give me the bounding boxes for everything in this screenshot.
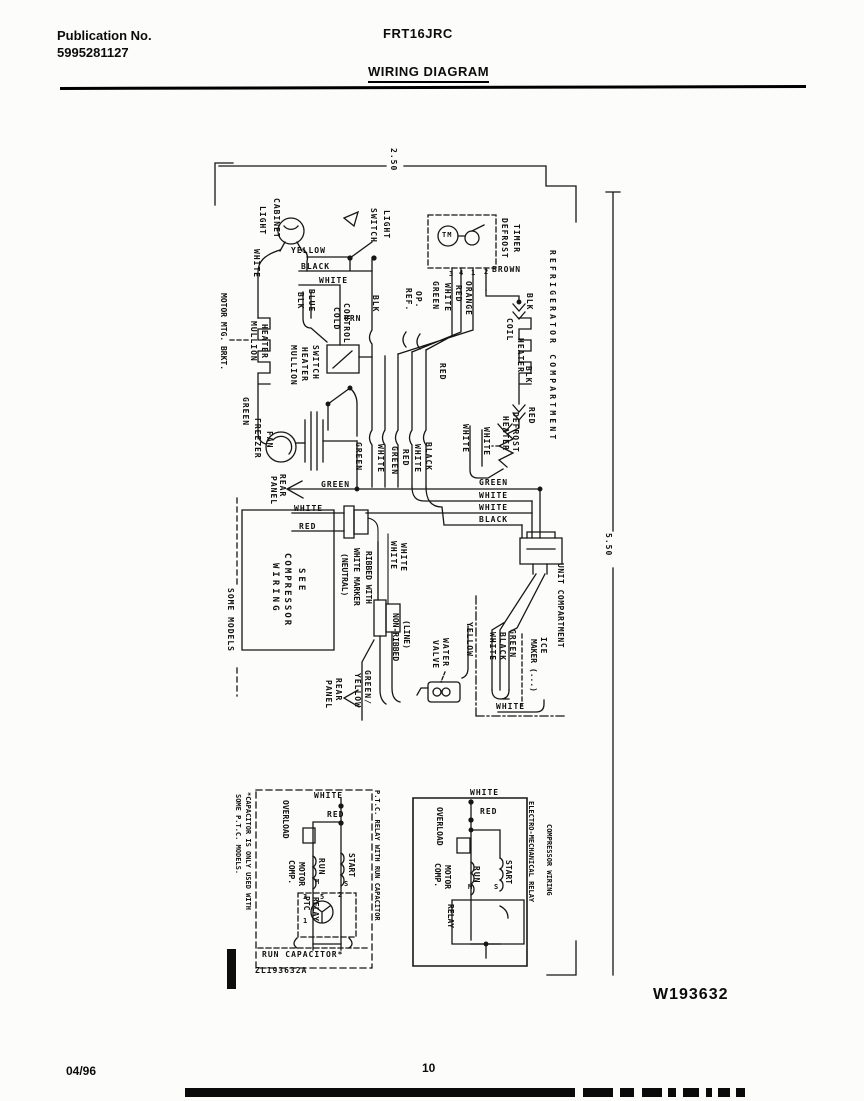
wire-label: PANEL bbox=[269, 476, 277, 505]
wire-label: WHITE bbox=[479, 492, 508, 500]
wire-label: COMP. bbox=[433, 863, 441, 887]
wire-label: TM bbox=[442, 232, 452, 239]
wire-label: HEATER bbox=[260, 324, 268, 359]
wire-label: RUN CAPACITOR* bbox=[262, 951, 343, 959]
wire-label: WHITE bbox=[319, 277, 348, 285]
wire-label: *CAPACITOR IS ONLY USED WITH bbox=[244, 792, 251, 910]
wire-label: 2.50 bbox=[389, 148, 397, 171]
wire-label: WHITE bbox=[496, 703, 525, 711]
wire-label: BLK bbox=[524, 366, 532, 383]
wire-label: 3 bbox=[449, 271, 454, 278]
wire-label: BLACK bbox=[479, 516, 508, 524]
wire-label: M bbox=[315, 879, 320, 886]
wire-label: HEATER bbox=[516, 338, 524, 373]
wire-label: GREEN bbox=[241, 397, 249, 426]
wire-label: RELAY bbox=[311, 897, 319, 921]
wire-label: ORN bbox=[344, 315, 361, 323]
wire-label: BROWN bbox=[492, 266, 521, 274]
wire-label: LIGHT bbox=[382, 210, 390, 239]
wire-label: COMP. bbox=[287, 860, 295, 884]
compressor-box-symbol bbox=[237, 498, 400, 720]
wire-label: BLK bbox=[371, 295, 379, 312]
unit-plug-symbol bbox=[520, 489, 562, 574]
wire-label: RUN bbox=[472, 866, 480, 883]
wire-label: LIGHT bbox=[258, 206, 266, 235]
wire-label: WHITE MARKER bbox=[352, 548, 360, 606]
wire-label: MAKER (...) bbox=[529, 639, 537, 692]
wire-label: MOTOR MTG. BRKT. bbox=[219, 293, 227, 370]
revision-date: 04/96 bbox=[66, 1064, 96, 1078]
wire-label: 2 bbox=[338, 892, 343, 899]
wire-label: HEATER bbox=[300, 347, 308, 382]
wire-label: START bbox=[504, 860, 512, 884]
wire-label: FREEZER bbox=[253, 418, 261, 459]
wire-label: RED bbox=[480, 808, 497, 816]
scan-bar bbox=[718, 1088, 730, 1097]
wire-label: 5.50 bbox=[604, 533, 612, 556]
scan-bar bbox=[683, 1088, 699, 1097]
wire-label: WIRING bbox=[270, 563, 279, 614]
wire-label: WHITE bbox=[470, 789, 499, 797]
scan-bar bbox=[642, 1088, 662, 1097]
wire-label: RED bbox=[327, 811, 344, 819]
wire-label: WHITE bbox=[461, 424, 469, 453]
drawing-number: W193632 bbox=[653, 986, 729, 1004]
scan-bar bbox=[706, 1088, 712, 1097]
wire-label: BLACK bbox=[498, 632, 506, 661]
scan-bar bbox=[620, 1088, 634, 1097]
wire-label: 5 bbox=[320, 894, 325, 901]
wire-label: BLUE bbox=[307, 289, 315, 312]
wire-label: DEFROST bbox=[500, 218, 508, 259]
wire-label: GREEN/ bbox=[363, 670, 371, 705]
wire-label: WATER bbox=[441, 638, 449, 667]
wire-label: VALVE bbox=[431, 640, 439, 669]
wire-label: RIBBED WITH bbox=[364, 551, 372, 604]
wire-label: CABINET bbox=[272, 198, 280, 239]
wire-label: OVERLOAD bbox=[281, 800, 289, 839]
wire-label: REFRIGERATOR COMPARTMENT bbox=[548, 250, 556, 442]
wire-label: TIMER bbox=[512, 224, 520, 253]
wire-label: DEFROST bbox=[511, 412, 519, 453]
wire-label: 2 bbox=[484, 269, 489, 276]
wire-label: (NEUTRAL) bbox=[340, 553, 348, 596]
wire-label: WHITE bbox=[399, 543, 407, 572]
wire-label: WHITE bbox=[314, 792, 343, 800]
wire-label: RED bbox=[438, 363, 446, 380]
page-number: 10 bbox=[422, 1061, 435, 1075]
scan-bar bbox=[583, 1088, 613, 1097]
wire-label: SOME MODELS bbox=[226, 588, 234, 652]
wire-label: ELECTRO-MECHANICAL RELAY bbox=[527, 801, 534, 902]
wire-label: SOME P.T.C. MODELS. bbox=[234, 794, 241, 874]
wire-label: BLK bbox=[296, 292, 304, 309]
wire-label: BLK bbox=[525, 293, 533, 310]
wire-label: GREEN bbox=[479, 479, 508, 487]
wire-label: PANEL bbox=[324, 680, 332, 709]
wire-label: 1 bbox=[471, 270, 476, 277]
wire-label: OVERLOAD bbox=[435, 807, 443, 846]
wire-label: NON-RIBBED bbox=[391, 613, 399, 661]
wire-label: BLACK bbox=[301, 263, 330, 271]
wire-label: RELAY bbox=[446, 904, 454, 928]
wire-label: UNIT COMPARTMENT bbox=[556, 563, 564, 648]
wire-label: S bbox=[344, 881, 349, 888]
wire-label: GREEN bbox=[431, 281, 439, 310]
wire-label: S bbox=[494, 884, 499, 891]
wire-label: WHITE bbox=[252, 249, 260, 278]
wire-label: REF. bbox=[404, 288, 412, 311]
wire-label: 1 bbox=[303, 918, 308, 925]
wire-label: WHITE bbox=[294, 505, 323, 513]
wire-label: MOTOR bbox=[443, 865, 451, 889]
wire-label: REAR bbox=[334, 678, 342, 701]
ptc-relay-box bbox=[256, 790, 372, 968]
wire-label: WHITE bbox=[413, 444, 421, 473]
wire-label: ICE bbox=[539, 637, 547, 654]
wire-label: (LINE) bbox=[402, 620, 410, 649]
wire-label: COMPRESSOR bbox=[282, 553, 291, 627]
wire-label: MOTOR bbox=[297, 862, 305, 886]
wire-label: ORANGE bbox=[464, 281, 472, 316]
wire-label: YELLOW bbox=[353, 673, 361, 708]
scan-bar bbox=[668, 1088, 676, 1097]
wire-label: GREEN bbox=[508, 629, 516, 658]
wire-label: FAN bbox=[265, 431, 273, 448]
wire-label: GREEN bbox=[354, 442, 362, 471]
wire-label: CONTROL bbox=[342, 303, 350, 344]
wire-label: GREEN bbox=[321, 481, 350, 489]
wire-label: BLACK bbox=[424, 442, 432, 471]
wire-label: WHITE bbox=[443, 283, 451, 312]
scan-bar bbox=[736, 1088, 745, 1097]
wire-label: REAR bbox=[278, 474, 286, 497]
wire-label: WHITE bbox=[482, 427, 490, 456]
wire-label: MULLION bbox=[249, 321, 257, 362]
wire-label: P.T.C. RELAY WITH RUN CAPACITOR bbox=[373, 790, 380, 921]
wire-label: RED bbox=[454, 285, 462, 302]
wiring-svg bbox=[0, 0, 864, 1101]
wire-label: MULLION bbox=[289, 345, 297, 386]
scan-bar bbox=[185, 1088, 575, 1097]
wire-label: SEE bbox=[296, 568, 305, 593]
wire-label: M bbox=[468, 884, 473, 891]
wire-label: COIL bbox=[505, 318, 513, 341]
wire-label: START bbox=[347, 853, 355, 877]
wire-label: GREEN bbox=[390, 446, 398, 475]
wire-label: OP. bbox=[414, 291, 422, 308]
wire-label: YELLOW bbox=[291, 247, 326, 255]
wire-label: COMPRESSOR WIRING bbox=[545, 824, 552, 896]
wire-label: RUN bbox=[317, 858, 325, 875]
wire-label: 4 bbox=[459, 270, 464, 277]
wire-label: RED bbox=[527, 407, 535, 424]
wire-label: ZL193632A bbox=[255, 967, 307, 975]
wire-label: 3 bbox=[303, 894, 308, 901]
defrost-timer-symbol bbox=[428, 215, 496, 290]
wire-label: RED bbox=[299, 523, 316, 531]
wire-label: SWITCH bbox=[311, 345, 319, 380]
wire-label: WHITE bbox=[488, 632, 496, 661]
wire-label: RED bbox=[401, 449, 409, 466]
wire-label: WHITE bbox=[376, 444, 384, 473]
wire-label: SWITCH bbox=[369, 208, 377, 243]
wire-label: YELLOW bbox=[465, 622, 473, 657]
manual-page: Publication No. 5995281127 FRT16JRC WIRI… bbox=[0, 0, 864, 1101]
wire-label: WHITE bbox=[479, 504, 508, 512]
wire-label: HEATER bbox=[501, 416, 509, 451]
wire-label: COLD bbox=[332, 307, 340, 330]
wire-label: WHITE bbox=[389, 541, 397, 570]
